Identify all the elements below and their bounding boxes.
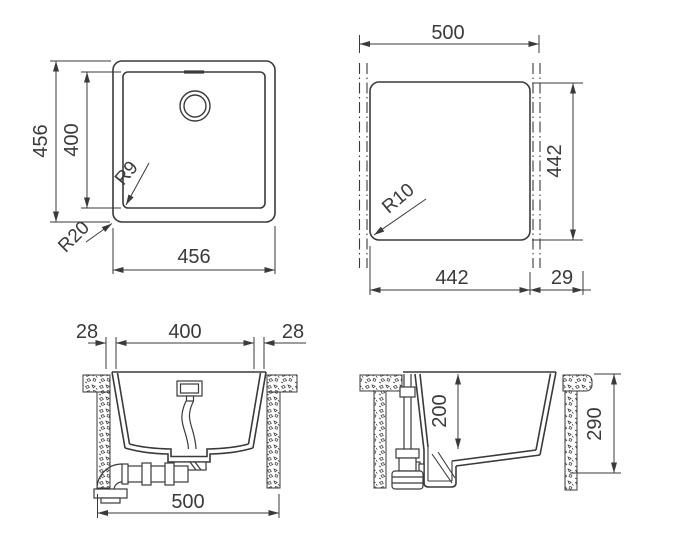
dim-label-cutout-offset-right: 29: [551, 267, 573, 289]
sink-side-outline: [403, 372, 556, 487]
worktop-slab-left: [83, 375, 110, 392]
worktop-slab-right-side: [563, 375, 592, 391]
bowl-outline: [123, 72, 265, 208]
cabinet-panel-right: [267, 392, 280, 488]
plan-view: 456 400 456 R9 R20: [30, 61, 275, 274]
front-section-view: 28 400 28 500: [76, 321, 306, 518]
drain-inner-icon: [184, 95, 206, 117]
trap-side-assembly: [392, 449, 424, 489]
dim-label-cutout-width-top: 500: [431, 22, 464, 44]
cabinet-panel-left: [97, 392, 110, 488]
worktop-slab-left-side: [360, 375, 402, 391]
cutout-view: 500 442 442 29 R10: [360, 22, 592, 295]
dim-label-plan-height-outer: 456: [30, 124, 52, 157]
worktop-centerlines: [360, 63, 541, 268]
dim-label-cutout-height-right: 442: [544, 144, 566, 177]
dim-label-plan-height-inner: 400: [61, 123, 83, 156]
dim-plan-height-inner: [81, 72, 121, 208]
radius-label-r9: R9: [111, 157, 143, 189]
dim-label-side-bowl-depth: 200: [429, 394, 451, 427]
dim-label-front-overhang-left: 28: [76, 321, 98, 343]
cabinet-panel-left-side: [374, 391, 386, 488]
overflow-box: [177, 381, 202, 401]
dim-label-plan-width-bottom: 456: [177, 246, 210, 268]
dim-label-front-width-inner: 400: [168, 321, 201, 343]
radius-label-r20: R20: [54, 217, 93, 256]
worktop-slab-right: [267, 375, 297, 392]
radius-label-r10: R10: [378, 180, 418, 218]
cabinet-panel-right-side: [565, 391, 577, 490]
technical-drawing-sheet: 456 400 456 R9 R20: [0, 0, 673, 547]
dim-label-cutout-width-bottom: 442: [435, 267, 468, 289]
overflow-slot-mark: [184, 70, 204, 73]
sink-rim-outline: [113, 61, 275, 222]
cutout-outline: [370, 82, 530, 240]
dim-label-side-total-depth: 290: [584, 407, 606, 440]
sink-technical-drawing: 456 400 456 R9 R20: [0, 0, 673, 547]
overflow-hose: [182, 401, 196, 449]
side-section-view: 200 290: [360, 372, 621, 490]
dim-label-front-width-total: 500: [171, 491, 204, 513]
dim-label-front-overhang-right: 28: [282, 321, 304, 343]
